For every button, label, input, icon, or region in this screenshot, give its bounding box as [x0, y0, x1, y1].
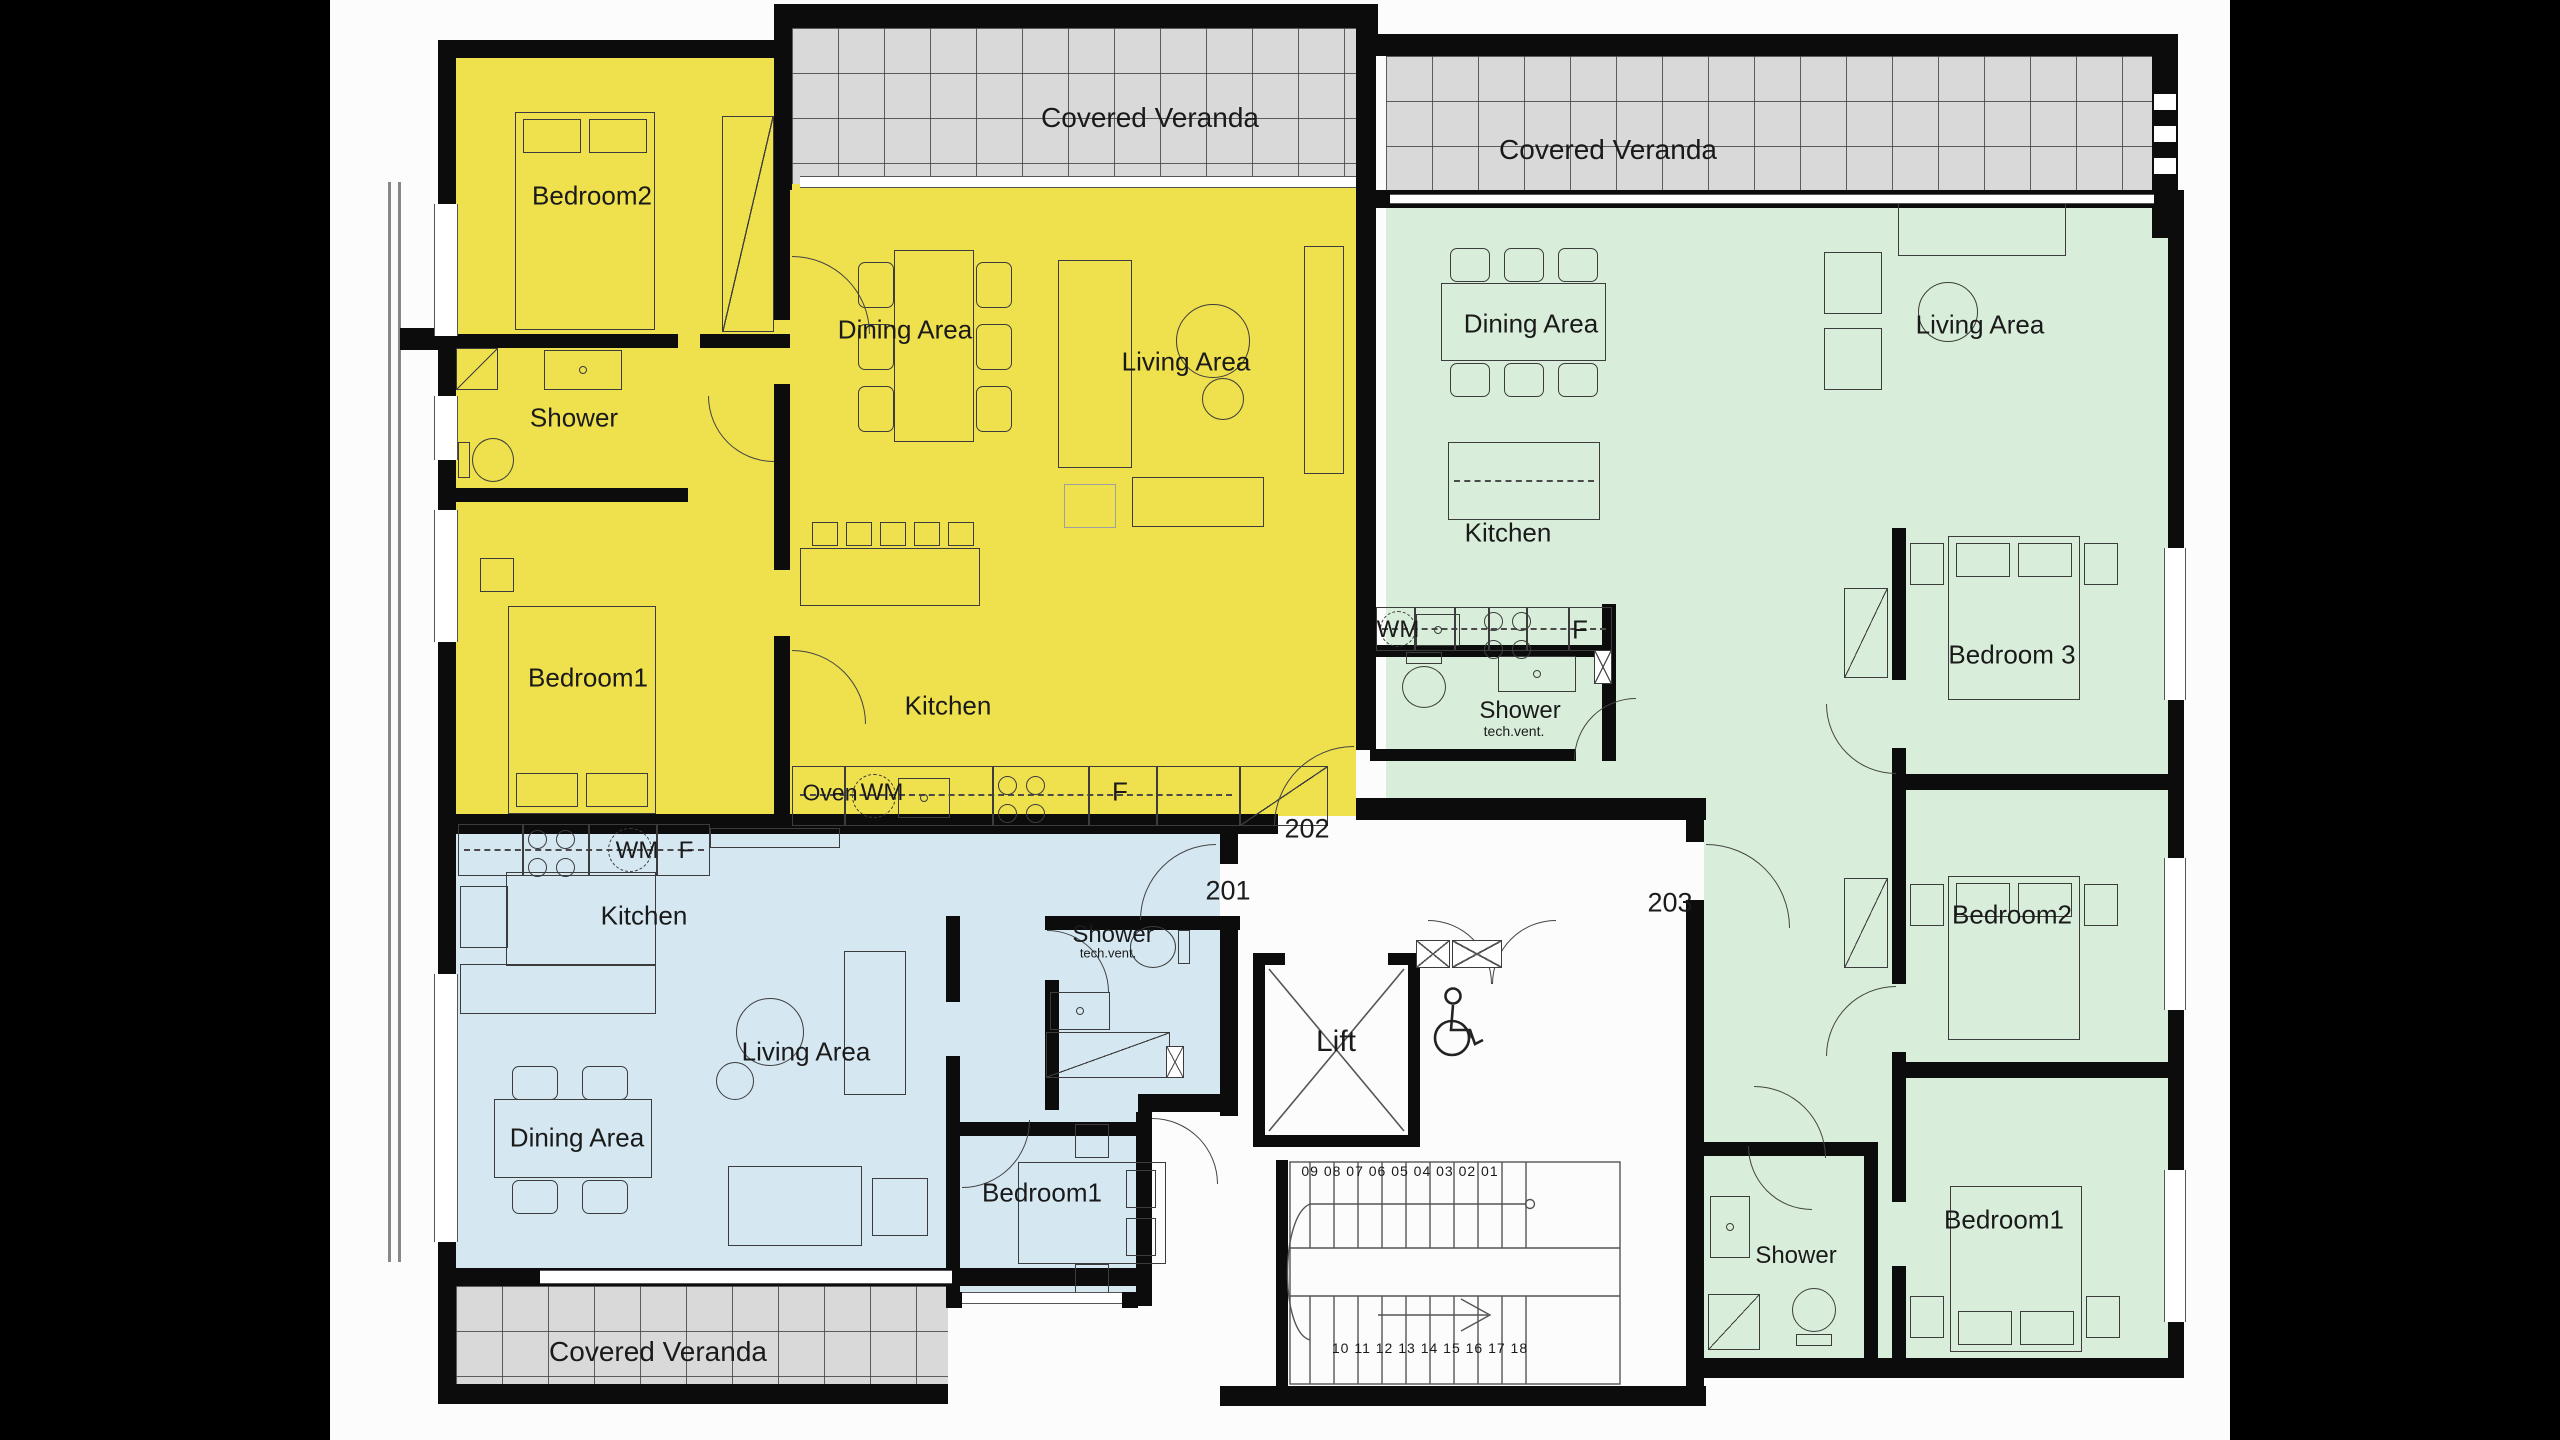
- veranda-top-right-label: Covered Veranda: [1499, 134, 1717, 166]
- nightstand: [2086, 1296, 2120, 1338]
- wardrobe: [1046, 1032, 1170, 1078]
- chair: [1450, 248, 1490, 282]
- window: [2164, 1170, 2186, 1322]
- chair: [976, 324, 1012, 370]
- u201-dining-label: Dining Area: [510, 1123, 644, 1154]
- nightstand: [2084, 884, 2118, 926]
- u202-wm-label: WM: [861, 779, 904, 807]
- window: [434, 974, 458, 1132]
- u202-bedroom1-label: Bedroom1: [528, 663, 648, 694]
- staircase-icon: [1278, 1154, 1678, 1394]
- window: [434, 204, 458, 336]
- wall: [774, 26, 792, 190]
- stool: [948, 522, 974, 546]
- bed-pillow: [589, 119, 647, 153]
- wheelchair-accessible-icon: [1426, 986, 1484, 1062]
- u203-kitchen-label: Kitchen: [1465, 518, 1552, 549]
- counter-line: [464, 849, 704, 851]
- wall: [774, 190, 790, 320]
- unit-203-number: 203: [1647, 888, 1692, 919]
- armchair: [872, 1178, 928, 1236]
- hob-burner: [1026, 776, 1045, 795]
- closet: [1844, 878, 1888, 968]
- window: [962, 1292, 1122, 1304]
- u203-shower-top-note: tech.vent.: [1484, 723, 1545, 739]
- stool: [812, 522, 838, 546]
- nightstand: [480, 558, 514, 592]
- wall: [1704, 1358, 2184, 1378]
- wall: [946, 1292, 962, 1308]
- counter-divider: [522, 824, 524, 876]
- u202-dining-label: Dining Area: [838, 315, 972, 346]
- chair: [1450, 363, 1490, 397]
- wall: [1892, 528, 1906, 680]
- hob-burner: [1484, 640, 1503, 659]
- u203-fridge-label: F: [1572, 615, 1588, 646]
- chair: [582, 1180, 628, 1214]
- veranda-bottom-label: Covered Veranda: [549, 1336, 767, 1368]
- wall: [774, 4, 1376, 28]
- chair: [976, 262, 1012, 308]
- sink-drain: [920, 794, 928, 802]
- plant: [1202, 378, 1244, 420]
- toilet-tank: [1796, 1334, 1832, 1346]
- u202-shower-label: Shower: [530, 403, 618, 434]
- unit-201-number: 201: [1205, 876, 1250, 907]
- shower-tray: [456, 348, 498, 390]
- bed-pillow: [586, 773, 648, 807]
- wall: [1686, 820, 1704, 842]
- bed-pillow: [1126, 1218, 1156, 1256]
- sofa: [844, 951, 906, 1095]
- armchair: [1824, 252, 1882, 314]
- kitchen-island: [800, 548, 980, 606]
- u203-bedroom2-label: Bedroom2: [1952, 900, 2072, 931]
- counter-divider: [588, 824, 590, 876]
- window: [434, 396, 458, 460]
- wall: [1370, 34, 2170, 56]
- u202-oven-label: Oven: [803, 780, 858, 807]
- toilet-tank: [458, 442, 470, 478]
- counter-divider: [992, 766, 994, 826]
- sink-drain: [579, 366, 587, 374]
- u201-wm-label: WM: [616, 837, 659, 865]
- u203-shower-bottom-label: Shower: [1755, 1242, 1836, 1270]
- wall: [946, 1056, 960, 1122]
- window: [2154, 94, 2176, 110]
- sink-drain: [1533, 670, 1541, 678]
- bed-pillow: [2018, 543, 2072, 577]
- lift-label: Lift: [1316, 1025, 1356, 1059]
- wall: [1892, 774, 2184, 790]
- hob-burner: [528, 858, 547, 877]
- wall: [1253, 1135, 1420, 1147]
- u203-wm-label: WM: [1377, 616, 1420, 644]
- sink-drain: [1434, 626, 1442, 634]
- kitchen-counter: [460, 964, 656, 1014]
- wall: [438, 334, 678, 348]
- left-letterbox: [0, 0, 330, 1440]
- closet: [1844, 588, 1888, 678]
- hob-burner: [556, 858, 575, 877]
- island-line: [1454, 480, 1594, 482]
- wall: [1138, 1094, 1238, 1112]
- wall: [1370, 749, 1576, 761]
- u203-bedroom1-label: Bedroom1: [1944, 1205, 2064, 1236]
- bed-pillow: [1956, 543, 2010, 577]
- bed-pillow: [523, 119, 581, 153]
- u201-living-label: Living Area: [742, 1037, 871, 1068]
- u201-kitchen-label: Kitchen: [601, 901, 688, 932]
- wall: [438, 1384, 948, 1404]
- wall: [1122, 1292, 1138, 1308]
- hob-burner: [1512, 640, 1531, 659]
- bed-pillow: [516, 773, 578, 807]
- chair: [1558, 363, 1598, 397]
- u202-fridge-label: F: [1112, 777, 1128, 808]
- vent-shaft: [1594, 650, 1612, 684]
- wall: [438, 488, 688, 502]
- chair: [512, 1066, 558, 1100]
- sink-drain: [1726, 1223, 1734, 1231]
- veranda-top-left-label: Covered Veranda: [1041, 102, 1259, 134]
- window: [2164, 548, 2186, 700]
- hob-burner: [528, 830, 547, 849]
- toilet-bowl: [1792, 1288, 1836, 1332]
- wall: [1220, 830, 1238, 864]
- u202-living-label: Living Area: [1122, 347, 1251, 378]
- wall: [1253, 953, 1285, 965]
- chair: [512, 1180, 558, 1214]
- hob-burner: [1026, 804, 1045, 823]
- veranda-top-right: [1386, 56, 2152, 192]
- armchair: [1824, 328, 1882, 390]
- nightstand: [2084, 543, 2118, 585]
- window: [2154, 158, 2176, 174]
- wall: [774, 384, 790, 570]
- right-letterbox: [2230, 0, 2560, 1440]
- stairs-down-numbers: 10 11 12 13 14 15 16 17 18: [1332, 1340, 1528, 1356]
- wall: [700, 334, 790, 348]
- chair: [582, 1066, 628, 1100]
- vent-shaft: [1452, 940, 1502, 968]
- wall: [774, 636, 790, 816]
- toilet-tank: [1178, 930, 1190, 964]
- chair: [858, 386, 894, 432]
- sofa: [1132, 477, 1264, 527]
- chair: [1558, 248, 1598, 282]
- counter-divider: [1568, 607, 1570, 651]
- dining-table: [894, 250, 974, 442]
- u201-shower-note: tech.vent.: [1080, 946, 1136, 961]
- window: [1390, 194, 2154, 204]
- chair: [858, 262, 894, 308]
- chair: [976, 386, 1012, 432]
- counter-divider: [1156, 766, 1158, 826]
- window: [434, 510, 458, 642]
- floor-plan-page: Covered Veranda Covered Veranda Covered …: [0, 0, 2560, 1440]
- wardrobe: [722, 116, 774, 332]
- u201-bedroom1-label: Bedroom1: [982, 1178, 1102, 1209]
- wall: [1864, 1146, 1878, 1378]
- toilet-bowl: [472, 438, 514, 482]
- hob-burner: [998, 804, 1017, 823]
- hob-burner: [1484, 612, 1503, 631]
- hob-burner: [1512, 612, 1531, 631]
- u203-living-label: Living Area: [1916, 310, 2045, 341]
- u203-shower-top-label: Shower: [1479, 697, 1560, 725]
- shower-tray: [1708, 1294, 1760, 1350]
- u202-kitchen-label: Kitchen: [905, 691, 992, 722]
- rug: [1064, 484, 1116, 528]
- wall: [1892, 1062, 2184, 1078]
- counter-divider: [1088, 766, 1090, 826]
- shelf: [710, 828, 840, 848]
- wall: [1253, 953, 1265, 1147]
- wall: [1686, 900, 1704, 1388]
- nightstand: [1910, 884, 1944, 926]
- wall: [1356, 798, 1706, 820]
- window: [540, 1270, 952, 1284]
- nightstand: [1075, 1124, 1109, 1158]
- balcony-rail: [388, 182, 391, 1262]
- stool: [846, 522, 872, 546]
- cabinet: [460, 886, 508, 948]
- unit-202-number: 202: [1284, 814, 1329, 845]
- nightstand: [1910, 1296, 1944, 1338]
- window: [2154, 126, 2176, 142]
- u202-bedroom2-label: Bedroom2: [532, 181, 652, 212]
- wall: [946, 916, 960, 1002]
- nightstand: [1910, 543, 1944, 585]
- toilet-tank: [1406, 652, 1442, 664]
- wall: [1408, 953, 1420, 1147]
- stool: [914, 522, 940, 546]
- wall: [438, 40, 784, 58]
- u203-bedroom3-label: Bedroom 3: [1948, 640, 2075, 671]
- window: [800, 176, 1356, 188]
- hob-burner: [556, 830, 575, 849]
- bed-pillow: [2020, 1311, 2074, 1345]
- floor-plan-canvas: Covered Veranda Covered Veranda Covered …: [330, 0, 2230, 1440]
- toilet-bowl: [1402, 666, 1446, 708]
- vent-shaft: [1166, 1046, 1184, 1078]
- chair: [1504, 248, 1544, 282]
- bed-pillow: [1958, 1311, 2012, 1345]
- wall: [1220, 920, 1238, 1116]
- sofa: [728, 1166, 862, 1246]
- window: [2164, 858, 2186, 1010]
- plant: [716, 1062, 754, 1100]
- tv-unit: [1304, 246, 1344, 474]
- window: [434, 1126, 458, 1242]
- vent-shaft: [1416, 940, 1450, 968]
- chair: [1504, 363, 1544, 397]
- stairs-up-numbers: 09 08 07 06 05 04 03 02 01: [1301, 1163, 1498, 1179]
- u203-dining-label: Dining Area: [1464, 309, 1598, 340]
- sink-drain: [1076, 1007, 1084, 1015]
- wall: [2152, 190, 2184, 238]
- stool: [880, 522, 906, 546]
- hob-burner: [998, 776, 1017, 795]
- u201-fridge-label: F: [679, 837, 694, 865]
- counter-divider: [1454, 607, 1456, 651]
